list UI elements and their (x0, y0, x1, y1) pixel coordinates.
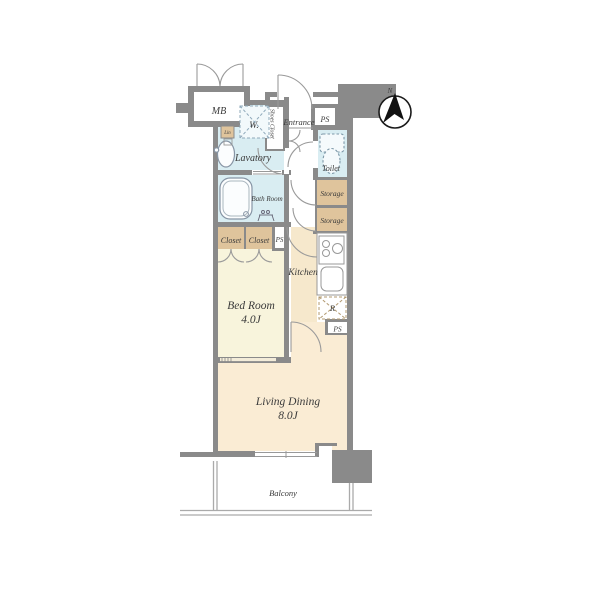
floorplan-canvas: N MB W. Shoes Closet Entrance PS Toilet … (0, 0, 614, 609)
closet-right-label: Closet (249, 236, 270, 245)
mb-stub-wall (176, 103, 188, 113)
ps-entrance-label: PS (320, 115, 330, 124)
ps-closet-label: PS (275, 236, 284, 244)
sliding-door (220, 358, 276, 362)
bedroom-size-label: 4.0J (241, 314, 261, 326)
toilet-label: Toilet (322, 164, 341, 173)
kitchen-label: Kitchen (287, 268, 318, 278)
stove-icon (319, 236, 344, 264)
balcony-notch (319, 446, 332, 457)
bath-label: Bath Room (251, 195, 282, 203)
storage-upper-label: Storage (320, 189, 344, 198)
storage-lower-label: Storage (320, 216, 344, 225)
living-dining-name-label: Living Dining (255, 396, 320, 408)
balcony-label: Balcony (269, 488, 297, 498)
living-dining-size-label: 8.0J (278, 410, 298, 422)
washer-label: W. (249, 121, 258, 131)
compass-north-label: N (387, 87, 393, 95)
bedroom-name-label: Bed Room (227, 300, 275, 312)
washbasin-tap-icon (214, 148, 218, 152)
kitchen-sink-icon (321, 267, 343, 291)
fridge-label: R (329, 303, 336, 313)
mb-label: MB (211, 106, 226, 117)
closet-left-label: Closet (221, 236, 242, 245)
linen-label: Lin (223, 131, 231, 136)
entrance-label: Entrance (282, 117, 314, 127)
pillar-bottom-right (332, 450, 372, 483)
floorplan-svg: N MB W. Shoes Closet Entrance PS Toilet … (0, 0, 614, 609)
ps-kitchen-label: PS (332, 325, 342, 334)
shoes-closet-label: Shoes Closet (269, 109, 275, 139)
lavatory-label: Lavatory (234, 153, 272, 164)
